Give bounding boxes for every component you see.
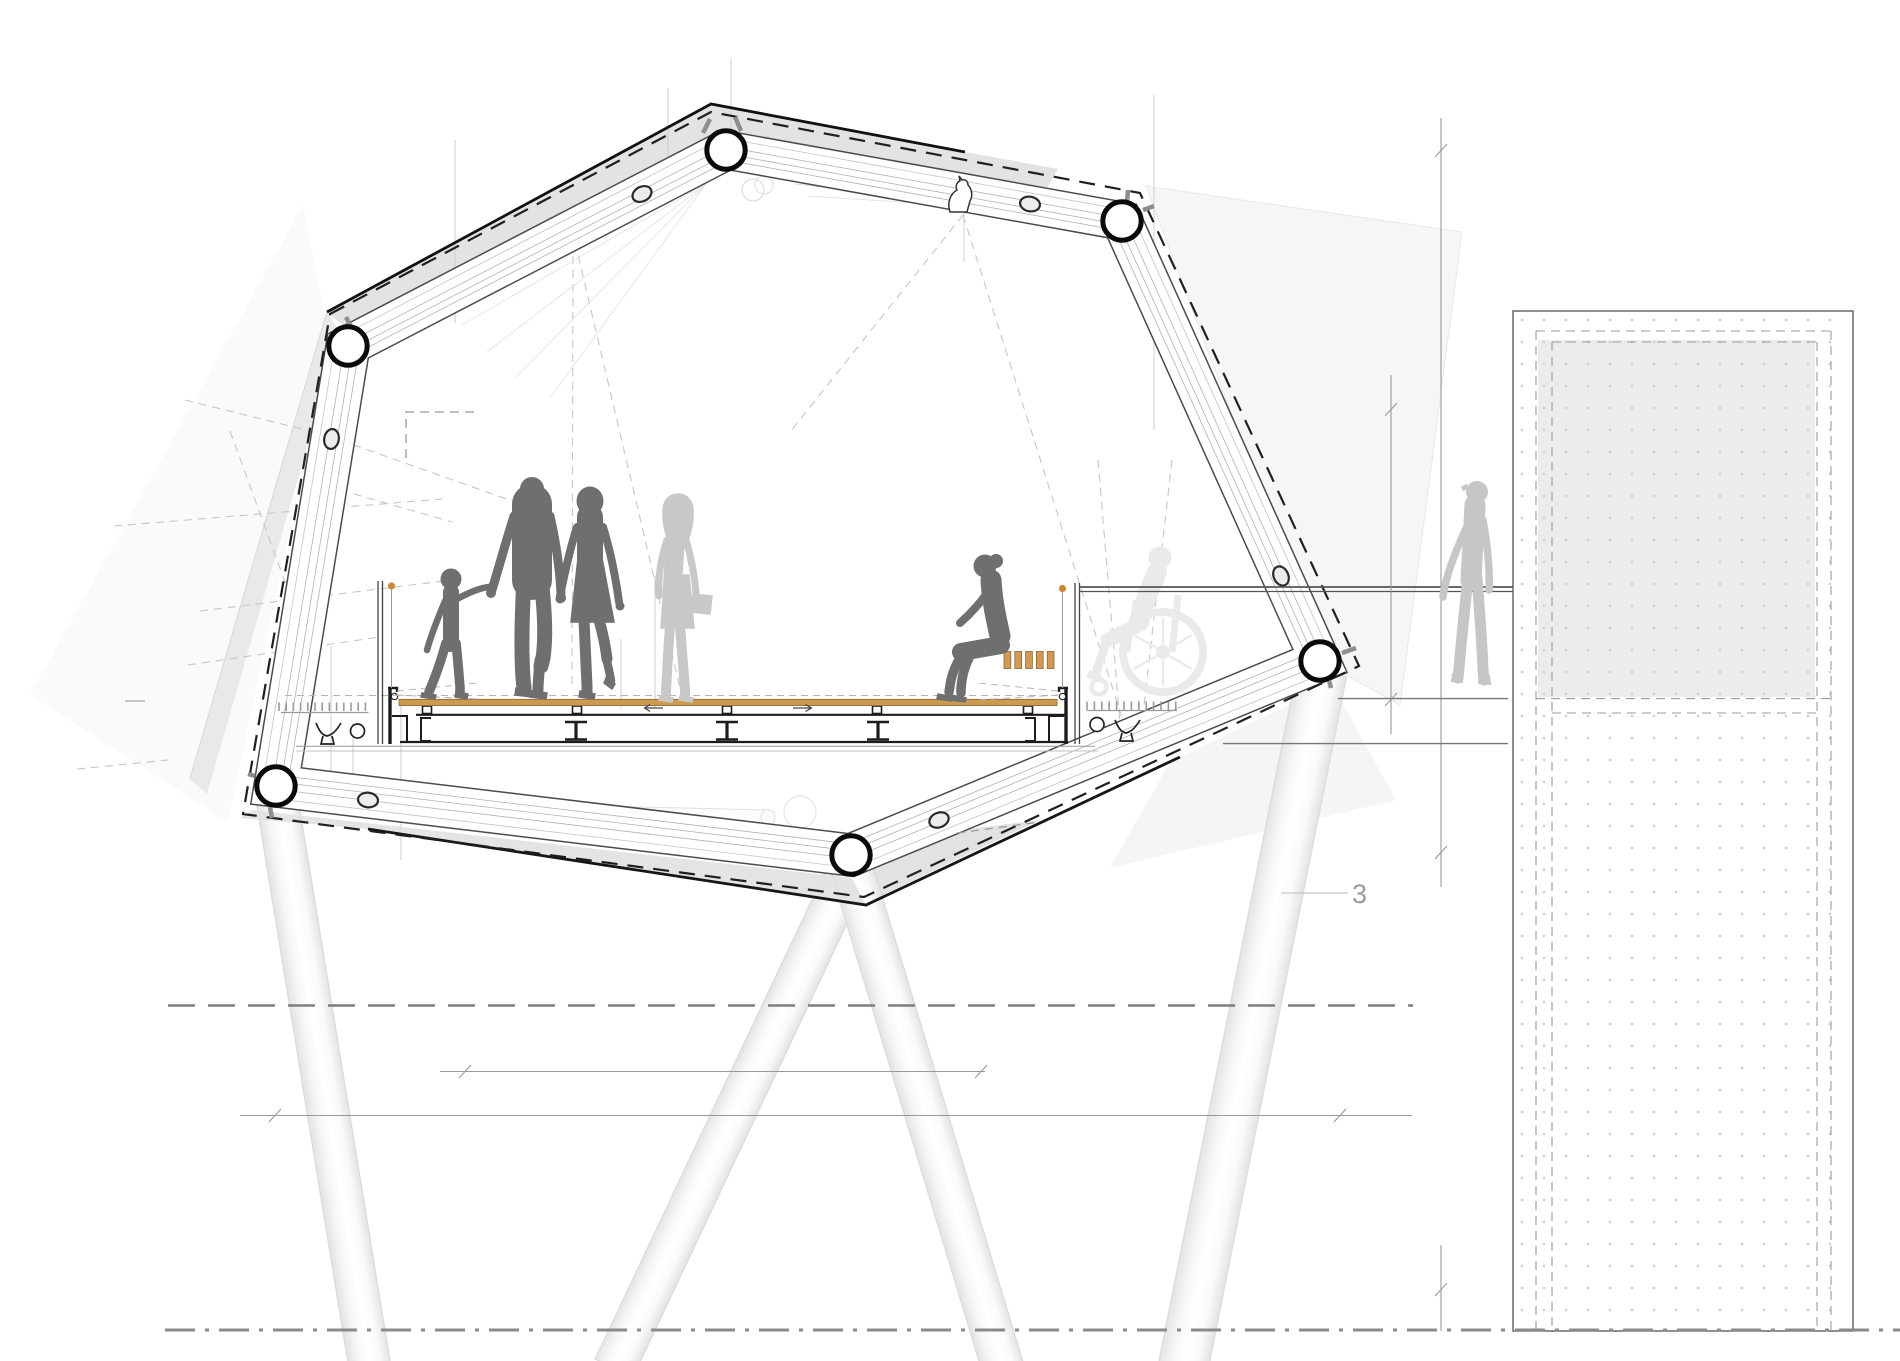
svg-text:3: 3 [1352, 879, 1367, 909]
